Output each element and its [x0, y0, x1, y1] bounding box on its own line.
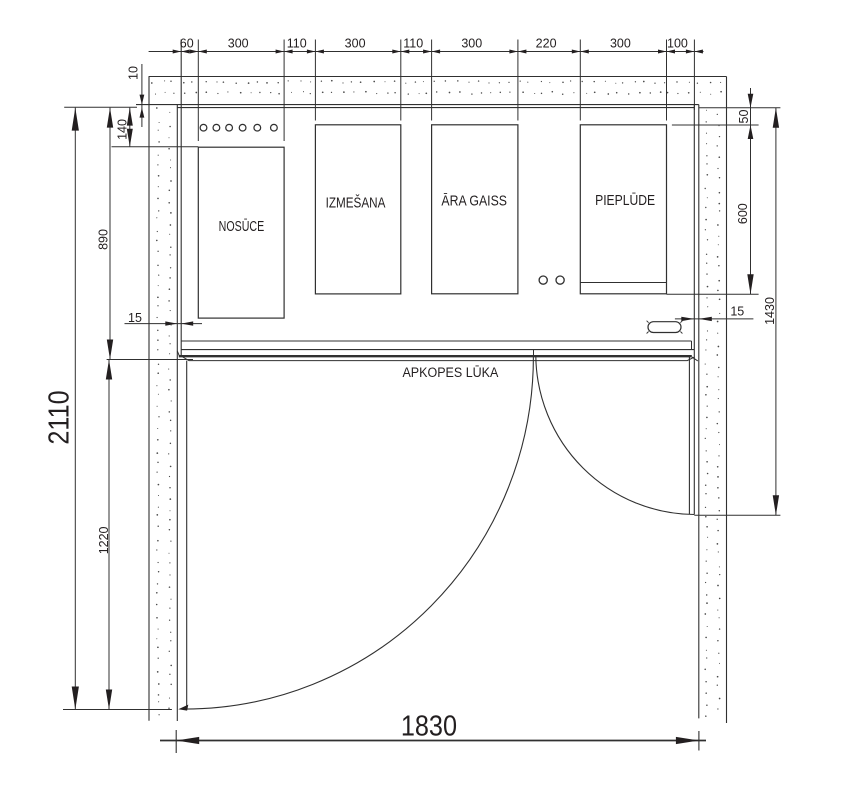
- svg-text:IZMEŠANA: IZMEŠANA: [326, 194, 386, 211]
- svg-text:300: 300: [461, 37, 482, 51]
- svg-text:890: 890: [96, 229, 110, 250]
- svg-text:1830: 1830: [401, 710, 457, 742]
- svg-text:110: 110: [403, 37, 423, 51]
- svg-text:15: 15: [128, 311, 142, 325]
- svg-text:140: 140: [115, 119, 129, 140]
- svg-text:ĀRA GAISS: ĀRA GAISS: [441, 192, 507, 208]
- svg-text:1430: 1430: [763, 297, 777, 325]
- svg-text:600: 600: [736, 203, 750, 224]
- svg-text:300: 300: [610, 37, 631, 51]
- svg-text:NOSŪCE: NOSŪCE: [219, 217, 265, 234]
- svg-text:APKOPES LŪKA: APKOPES LŪKA: [402, 364, 498, 380]
- svg-text:60: 60: [180, 37, 194, 51]
- svg-text:2110: 2110: [43, 390, 75, 444]
- svg-text:110: 110: [287, 37, 307, 51]
- svg-text:10: 10: [126, 66, 140, 80]
- svg-text:50: 50: [737, 110, 751, 124]
- svg-text:1220: 1220: [97, 526, 111, 554]
- svg-text:220: 220: [536, 37, 557, 51]
- svg-text:300: 300: [228, 37, 249, 51]
- svg-text:PIEPLŪDE: PIEPLŪDE: [595, 192, 655, 208]
- svg-text:15: 15: [730, 305, 744, 319]
- svg-text:100: 100: [667, 37, 688, 51]
- svg-text:300: 300: [345, 37, 366, 51]
